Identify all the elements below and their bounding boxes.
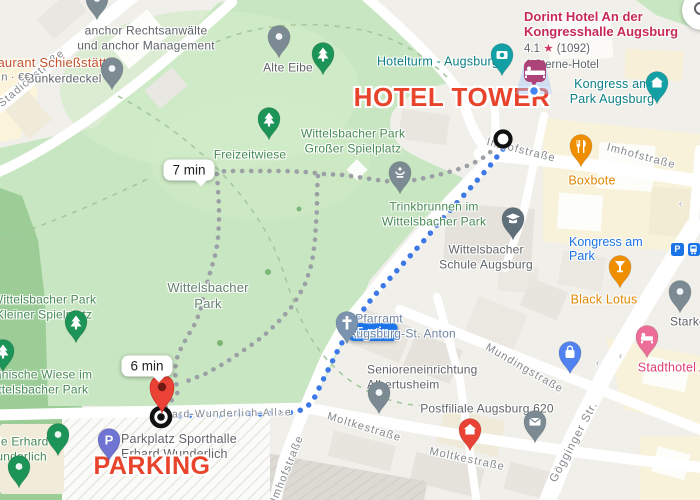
street-erhard-wunderlich-allee: Erhard-Wunderlich-Allee: [152, 406, 292, 421]
park-paths: [0, 25, 450, 406]
halle-green-pin-2[interactable]: [6, 454, 32, 488]
oneway-arrow-1: ‹: [595, 358, 602, 371]
hotelturm-label[interactable]: Hotelturm - Augsburg: [377, 54, 499, 69]
kongress-am-park-transit-label[interactable]: Kongress am Park P: [569, 235, 700, 263]
street-imhofstrasse-top-2: Imhofstraße: [605, 141, 677, 172]
schule-pin[interactable]: [500, 206, 526, 240]
oneway-arrow-3: ‹: [678, 199, 683, 211]
halle-erhard-label-line1[interactable]: Halle Erhard: [0, 435, 49, 450]
kongress-transit-text: Kongress am Park: [569, 235, 667, 263]
park-trees: [217, 207, 302, 347]
playground-diamond: [346, 159, 367, 180]
alte-eibe-label[interactable]: Alte Eibe: [263, 61, 313, 76]
wittelsbacher-park-label[interactable]: Wittelsbacher Park: [167, 280, 248, 312]
senioreneinrichtung-label[interactable]: Senioreneinrichtung Albertusheim: [367, 362, 478, 391]
freizeitwiese-tree-pin[interactable]: [256, 106, 282, 140]
kongress-am-park-pin[interactable]: [644, 70, 670, 104]
parkplatz-sporthalle-label[interactable]: Parkplatz Sporthalle Erhard Wunderlich: [121, 432, 237, 463]
train-icon: [688, 243, 700, 256]
parking-icon: P: [671, 243, 683, 256]
stadthotel-pin[interactable]: [634, 324, 660, 358]
kleiner-spielplatz-tree-pin[interactable]: [63, 309, 89, 343]
svg-text:P: P: [105, 433, 114, 448]
alte-eibe-tree-pin[interactable]: [310, 41, 336, 75]
spanische-wiese-label[interactable]: Spanische Wiese im Wittelsbacher Park: [0, 367, 92, 396]
route-badge-6min[interactable]: 6 min: [121, 356, 172, 377]
search-button[interactable]: [682, 0, 700, 30]
oneway-arrow-2: ‹: [618, 351, 625, 364]
route-gray-top[interactable]: [215, 146, 497, 182]
route-gray-west[interactable]: [165, 174, 219, 408]
boxbote-label[interactable]: Boxbote: [568, 173, 615, 188]
bunkerdeckel-pin[interactable]: [99, 56, 125, 90]
destination-red-pin[interactable]: [149, 373, 175, 413]
street-stadionstrasse: Stadionstraße: [0, 47, 68, 110]
grosser-spielplatz-label[interactable]: Wittelsbacher Park Großer Spielplatz: [301, 126, 405, 155]
blue-shop-pin[interactable]: [557, 340, 583, 374]
kleiner-spielplatz-label[interactable]: Wittelsbacher Park Kleiner Spielplatz: [0, 292, 96, 321]
search-icon: [692, 0, 700, 20]
trinkbrunnen-label[interactable]: Trinkbrunnen im Wittelsbacher Park: [382, 199, 486, 228]
parkplatz-parking-pin[interactable]: P: [96, 427, 122, 461]
boxbote-pin[interactable]: [568, 133, 594, 167]
street-moltkestrasse-1: Moltkestraße: [325, 410, 402, 445]
route-start-marker[interactable]: [490, 126, 516, 152]
spanische-wiese-tree-pin[interactable]: [0, 338, 16, 372]
trinkbrunnen-pin[interactable]: [387, 160, 413, 194]
street-allee-arrow: ›: [279, 406, 284, 419]
map-viewport[interactable]: StadionstraßeImhofstraßeImhofstraßeImhof…: [0, 0, 700, 500]
halle-green-pin-1[interactable]: [45, 422, 71, 456]
street-goegginger-str: Gögginger Str.: [547, 399, 601, 485]
route-badge-5min[interactable]: 5 min: [349, 323, 398, 341]
senioreneinrichtung-pin[interactable]: [366, 380, 392, 414]
route-gray-east[interactable]: [181, 176, 318, 384]
black-lotus-label[interactable]: Black Lotus: [571, 292, 638, 307]
route-end-marker[interactable]: [146, 402, 176, 432]
street-moltkestrasse-2: Moltkestraße: [428, 445, 506, 474]
alte-eibe-pin[interactable]: [266, 24, 292, 58]
dorint-title-line1: Dorint Hotel An der: [524, 10, 678, 25]
starke-pin[interactable]: [667, 279, 693, 313]
street-imhofstrasse-bottom: Imhofstraße: [269, 434, 308, 500]
street-imhofstrasse-top-1: Imhofstraße: [485, 136, 557, 166]
pfarramt-label-line2[interactable]: Augsburg-St. Anton: [348, 327, 456, 342]
freizeitwiese-label[interactable]: Freizeitwiese: [214, 148, 287, 163]
parking-annotation: PARKING: [94, 451, 211, 482]
schule-label[interactable]: Wittelsbacher Schule Augsburg: [439, 242, 533, 271]
street-mundingstrasse: Mundingstraße: [483, 341, 566, 396]
postfiliale-label[interactable]: Postfiliale Augsburg 620: [420, 402, 554, 417]
bunkerdeckel-label[interactable]: Bunkerdeckel: [26, 72, 101, 87]
dorint-review-count: (1092): [557, 43, 590, 55]
restaurant-schiessstaette-label[interactable]: Restaurant Schießstätte: [0, 55, 114, 71]
pfarramt-church-pin[interactable]: [334, 310, 360, 344]
route-badge-7min[interactable]: 7 min: [163, 160, 214, 181]
dorint-title-line2: Kongresshalle Augsburg: [524, 25, 678, 40]
kongress-am-park-augsburg-label[interactable]: Kongress am Park Augsburg: [570, 77, 655, 108]
restaurant-schiessstaette-price: n · €€: [1, 71, 30, 84]
pfarramt-label-line1[interactable]: Pfarramt: [355, 312, 403, 327]
red-house-pin[interactable]: [457, 417, 483, 451]
dorint-hotel-pin[interactable]: [509, 54, 559, 100]
stadthotel-label[interactable]: Stadthotel Augsburg: [638, 360, 700, 375]
route-blue-selected[interactable]: [175, 149, 503, 416]
current-place-dot: [529, 86, 539, 96]
postfiliale-mail-pin[interactable]: [522, 409, 548, 443]
starke-label[interactable]: Starke: [670, 315, 700, 330]
anchor-management-label[interactable]: anchor Rechtsanwälte und anchor Manageme…: [77, 23, 215, 52]
anchor-pin[interactable]: [84, 0, 110, 20]
halle-erhard-label-line2[interactable]: Wunderlich: [0, 450, 47, 465]
